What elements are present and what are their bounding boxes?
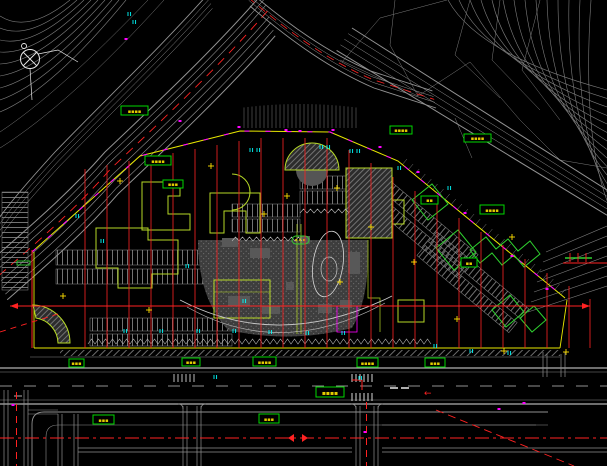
site-label: ▪▪▪	[93, 415, 114, 424]
svg-text:▪▪▪: ▪▪▪	[186, 360, 196, 366]
site-label: ▪▪▪▪	[464, 134, 491, 142]
svg-text:▪▪▪: ▪▪▪	[430, 361, 440, 367]
left-arrow-marking: ←	[424, 389, 432, 399]
drawing-background	[0, 0, 607, 466]
svg-text:▪▪▪▪: ▪▪▪▪	[485, 208, 499, 214]
site-label: ▪▪	[461, 258, 477, 267]
svg-text:▪▪▪: ▪▪▪	[98, 418, 108, 424]
site-label: ▪▪▪▪	[253, 357, 276, 366]
site-label: ▪▪▪▪	[316, 387, 344, 397]
road-arrow-markings: ←	[424, 389, 432, 399]
cad-viewport[interactable]: ▪▪▪▪▪▪▪▪▪▪▪▪▪▪▪▪▪▪▪▪▪▪▪▪▪▪▪▪▪▪▪▪▪▪▪▪▪▪▪▪…	[0, 0, 607, 466]
svg-text:▪▪▪▪: ▪▪▪▪	[471, 136, 485, 142]
svg-text:▪▪▪: ▪▪▪	[264, 417, 274, 423]
svg-text:▪▪▪▪: ▪▪▪▪	[258, 360, 272, 366]
svg-text:▪▪▪: ▪▪▪	[71, 361, 81, 367]
svg-text:▪▪▪▪: ▪▪▪▪	[128, 109, 142, 115]
site-plan-svg: ▪▪▪▪▪▪▪▪▪▪▪▪▪▪▪▪▪▪▪▪▪▪▪▪▪▪▪▪▪▪▪▪▪▪▪▪▪▪▪▪…	[0, 0, 607, 466]
svg-text:▪▪: ▪▪	[466, 261, 473, 267]
site-label: ▪▪▪▪	[357, 358, 378, 367]
site-label: ▪▪▪▪	[121, 106, 148, 115]
site-label: ▪▪▪	[425, 358, 445, 367]
svg-text:▪▪▪▪: ▪▪▪▪	[361, 361, 375, 367]
site-label: ▪▪▪	[182, 358, 200, 366]
svg-text:▪▪: ▪▪	[426, 198, 433, 204]
site-label: ▪▪▪▪	[390, 126, 412, 134]
site-label: ▪▪▪▪	[480, 205, 504, 214]
site-label: ▪▪▪▪	[145, 156, 171, 165]
svg-text:▪▪▪▪: ▪▪▪▪	[322, 390, 338, 397]
site-label: ▪▪▪	[163, 180, 183, 188]
svg-text:▪▪▪▪: ▪▪▪▪	[151, 159, 165, 165]
svg-text:▪▪▪▪: ▪▪▪▪	[394, 128, 408, 134]
site-label: ▪▪	[421, 196, 438, 204]
site-label: ▪▪▪	[69, 359, 84, 367]
site-label: ▪▪▪	[259, 414, 279, 423]
svg-text:▪▪▪: ▪▪▪	[168, 182, 178, 188]
